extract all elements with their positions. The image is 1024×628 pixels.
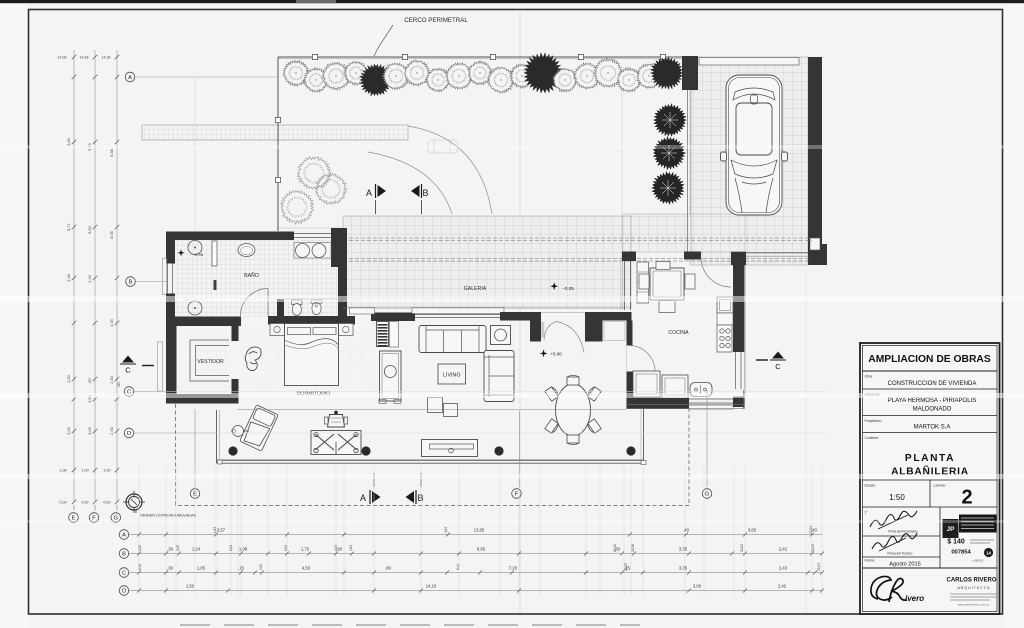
- svg-text:22,03: 22,03: [809, 526, 813, 534]
- svg-text:CERCO PERIMETRAL: CERCO PERIMETRAL: [404, 17, 468, 24]
- svg-text:COCINA: COCINA: [668, 330, 689, 336]
- svg-text:3,00: 3,00: [88, 427, 92, 434]
- svg-text:B: B: [418, 493, 424, 503]
- svg-text:1,75: 1,75: [301, 547, 310, 552]
- svg-text:20,03: 20,03: [740, 544, 744, 552]
- svg-text:A: A: [122, 533, 126, 539]
- svg-text:+0.00: +0.00: [550, 352, 562, 357]
- svg-text:,30: ,30: [167, 566, 173, 571]
- svg-text:,40: ,40: [683, 528, 689, 533]
- svg-text:2,43: 2,43: [779, 566, 788, 571]
- svg-text:0,45: 0,45: [176, 545, 180, 551]
- svg-text:MARTOK S.A: MARTOK S.A: [914, 425, 951, 431]
- svg-text:AMPLIACION DE OBRAS: AMPLIACION DE OBRAS: [868, 354, 991, 365]
- svg-text:$ 140: $ 140: [947, 539, 965, 546]
- svg-text:2,03: 2,03: [229, 545, 233, 551]
- svg-text:Firma del Tecnico: Firma del Tecnico: [888, 552, 913, 556]
- svg-text:16,25: 16,25: [624, 563, 628, 571]
- svg-text:Obra:: Obra:: [865, 375, 874, 379]
- svg-text:1,08: 1,08: [60, 469, 67, 473]
- svg-text:D: D: [127, 431, 131, 437]
- svg-text:4,03: 4,03: [334, 545, 338, 551]
- svg-text:4,62: 4,62: [444, 527, 448, 533]
- svg-text:14,38: 14,38: [102, 56, 111, 60]
- svg-text:0,15: 0,15: [138, 545, 142, 551]
- svg-text:,80: ,80: [385, 566, 391, 571]
- svg-text:8,05: 8,05: [110, 231, 114, 238]
- svg-text:14: 14: [986, 551, 991, 556]
- svg-text:Contiene:: Contiene:: [865, 436, 880, 440]
- svg-text:1,98: 1,98: [239, 547, 248, 552]
- svg-text:2,50: 2,50: [67, 375, 71, 382]
- svg-text:007854: 007854: [951, 550, 971, 556]
- svg-text:2,62: 2,62: [259, 564, 263, 570]
- svg-text:2,42: 2,42: [778, 584, 787, 589]
- svg-text:CONSTRUCCION DE VIVIENDA: CONSTRUCCION DE VIVIENDA: [888, 381, 977, 387]
- svg-text:16,10: 16,10: [613, 544, 617, 552]
- svg-text:2,46: 2,46: [67, 274, 71, 281]
- svg-text:LIVING: LIVING: [443, 373, 461, 379]
- svg-text:Agosto 2015: Agosto 2015: [889, 562, 920, 568]
- svg-text:3,35: 3,35: [679, 547, 688, 552]
- svg-text:2,43: 2,43: [88, 275, 92, 282]
- svg-text:2,30: 2,30: [110, 376, 114, 383]
- svg-text:F: F: [515, 492, 519, 498]
- svg-text:2,42: 2,42: [779, 547, 788, 552]
- svg-text:A: A: [128, 75, 132, 81]
- svg-text:Firma del Propietario: Firma del Propietario: [888, 530, 918, 534]
- svg-text:3,03: 3,03: [284, 545, 288, 551]
- svg-text:PLANTA: PLANTA: [905, 453, 955, 464]
- svg-text:1,00: 1,00: [82, 469, 89, 473]
- svg-text:ORIGEN COTAS ACUMULADAS: ORIGEN COTAS ACUMULADAS: [140, 514, 197, 518]
- svg-text:1,00: 1,00: [104, 469, 111, 473]
- svg-text:,15: ,15: [238, 566, 244, 571]
- svg-text:2: 2: [961, 487, 972, 509]
- svg-text:3,60: 3,60: [748, 528, 757, 533]
- svg-text:B: B: [122, 552, 126, 558]
- svg-text:4,45: 4,45: [110, 319, 114, 326]
- svg-text:8,71: 8,71: [67, 223, 71, 230]
- svg-text:A: A: [360, 493, 366, 503]
- svg-text:0,15: 0,15: [138, 564, 142, 570]
- svg-text:B: B: [423, 188, 429, 198]
- svg-text:A: A: [366, 188, 372, 198]
- svg-text:Lamina:: Lamina:: [934, 484, 946, 488]
- svg-text:GALERIA: GALERIA: [464, 286, 487, 292]
- svg-text:1,63: 1,63: [213, 527, 217, 533]
- svg-text:Fecha:: Fecha:: [865, 559, 875, 563]
- svg-text:Propietario:: Propietario:: [865, 419, 882, 423]
- svg-text:14,38: 14,38: [80, 56, 89, 60]
- svg-text:8,95: 8,95: [477, 547, 486, 552]
- svg-text:8,53: 8,53: [88, 226, 92, 233]
- svg-text:Escala:: Escala:: [865, 484, 876, 488]
- svg-text:1,85: 1,85: [197, 566, 206, 571]
- svg-text:ivero: ivero: [905, 594, 924, 603]
- svg-text:www.carlosrivero.com.uy: www.carlosrivero.com.uy: [958, 603, 990, 607]
- svg-text:G: G: [705, 492, 709, 498]
- svg-text:VESTIDOR: VESTIDOR: [197, 359, 224, 365]
- svg-text:+VERSO: +VERSO: [972, 559, 984, 563]
- svg-text:3,35: 3,35: [679, 566, 688, 571]
- svg-text:3,00: 3,00: [67, 427, 71, 434]
- svg-text:7,20: 7,20: [509, 566, 518, 571]
- svg-text:18,16: 18,16: [631, 544, 635, 552]
- svg-text:1°: 1°: [865, 511, 869, 515]
- svg-text:A R Q U I T E C T O: A R Q U I T E C T O: [957, 586, 989, 590]
- svg-text:3,57: 3,57: [217, 528, 226, 533]
- svg-text:1,24: 1,24: [192, 547, 201, 552]
- svg-text:,50: ,50: [88, 378, 92, 383]
- svg-text:MALDONADO: MALDONADO: [913, 407, 952, 413]
- svg-text:BAÑO: BAÑO: [244, 272, 259, 279]
- svg-text:PLAYA HERMOSA - PIRIAPOLIS: PLAYA HERMOSA - PIRIAPOLIS: [888, 398, 976, 404]
- svg-text:2,00: 2,00: [110, 427, 114, 434]
- svg-text:D: D: [122, 589, 126, 595]
- svg-text:CARLOS RIVERO: CARLOS RIVERO: [946, 578, 996, 584]
- svg-text:14,10: 14,10: [426, 584, 437, 589]
- svg-text:5,63: 5,63: [67, 138, 71, 145]
- svg-text:6,41: 6,41: [456, 564, 460, 570]
- svg-text:0,00: 0,00: [82, 501, 89, 505]
- svg-text:4,50: 4,50: [302, 566, 311, 571]
- svg-text:C: C: [775, 362, 781, 371]
- svg-text:13,05: 13,05: [474, 528, 485, 533]
- svg-text:22,03: 22,03: [817, 563, 821, 571]
- svg-text:C: C: [122, 571, 126, 577]
- svg-text:14,38: 14,38: [58, 56, 67, 60]
- svg-text:1,50: 1,50: [186, 584, 195, 589]
- svg-text:+2.05: +2.05: [193, 252, 204, 257]
- svg-text:4,63: 4,63: [349, 545, 353, 551]
- svg-text:0,00: 0,00: [104, 501, 111, 505]
- svg-text:3,00: 3,00: [693, 584, 702, 589]
- svg-text:6,38: 6,38: [110, 149, 114, 156]
- svg-text:JP: JP: [947, 526, 956, 533]
- svg-text:B: B: [129, 280, 133, 286]
- svg-text:0,00: 0,00: [60, 501, 67, 505]
- svg-text:22,03: 22,03: [811, 544, 815, 552]
- svg-text:,30: ,30: [167, 547, 173, 552]
- svg-text:1:50: 1:50: [889, 493, 905, 502]
- svg-text:−0.05: −0.05: [562, 286, 574, 291]
- svg-text:C: C: [125, 366, 131, 375]
- svg-text:,30: ,30: [117, 382, 121, 387]
